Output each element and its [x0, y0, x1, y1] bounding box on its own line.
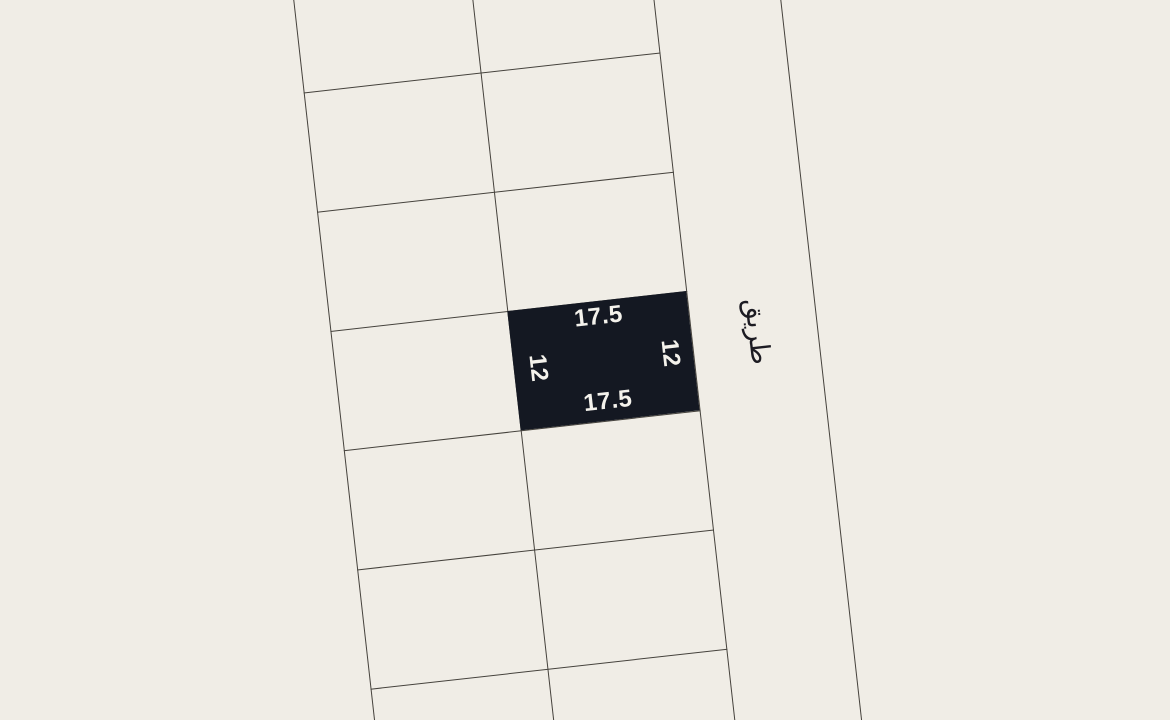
- parcel-top-dimension: 17.5: [573, 302, 624, 331]
- parcel-bottom-dimension: 17.5: [582, 387, 633, 416]
- selected-parcel[interactable]: 17.5 12 12 17.5: [507, 291, 699, 430]
- road-edge-line: [767, 0, 867, 720]
- parcel-right-dimension: 12: [657, 338, 684, 368]
- parcel-left-dimension: 12: [524, 353, 551, 383]
- boundary-line-left: [286, 0, 386, 720]
- road-label: طريق: [738, 297, 776, 366]
- parcel-map: 17.5 12 12 17.5 طريق: [0, 0, 1170, 720]
